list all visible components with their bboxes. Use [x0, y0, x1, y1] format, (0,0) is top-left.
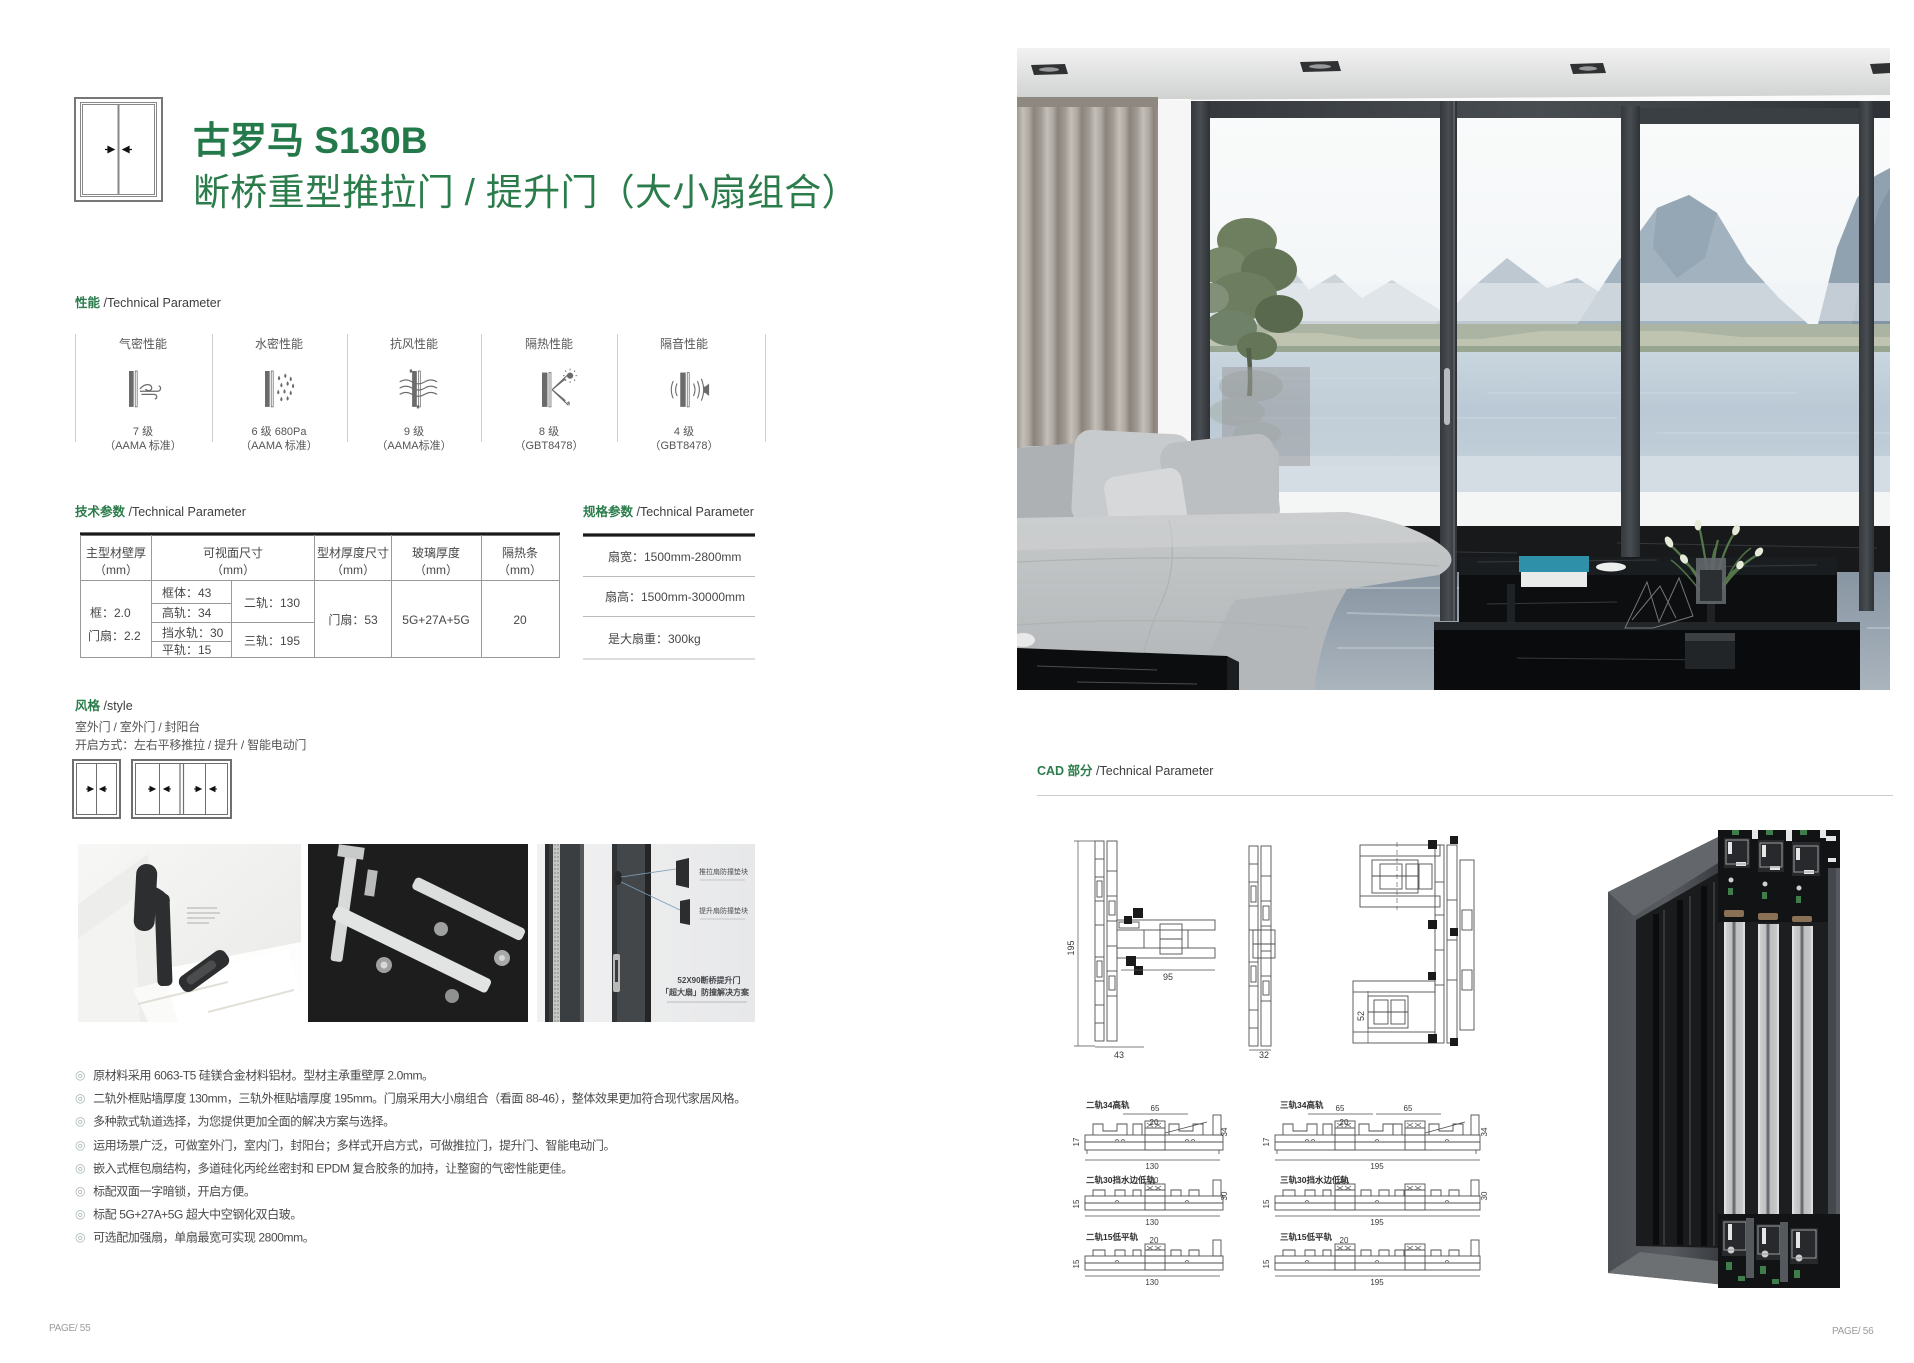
svg-text:平轨：15: 平轨：15 — [162, 643, 212, 657]
svg-text:6 级 680Pa: 6 级 680Pa — [251, 425, 307, 438]
svg-text:可视面尺寸: 可视面尺寸 — [203, 545, 263, 560]
svg-text:130: 130 — [1145, 1278, 1159, 1287]
svg-text:5G+27A+5G: 5G+27A+5G — [402, 613, 469, 627]
svg-text:195: 195 — [1370, 1278, 1384, 1287]
svg-text:三轨34高轨: 三轨34高轨 — [1280, 1100, 1324, 1110]
svg-text:15: 15 — [1072, 1259, 1081, 1268]
svg-text:9 级: 9 级 — [404, 425, 424, 438]
svg-text:17: 17 — [1072, 1137, 1081, 1146]
svg-text:挡水轨：30: 挡水轨：30 — [162, 626, 224, 640]
svg-text:框：2.0: 框：2.0 — [90, 606, 131, 620]
svg-text:20: 20 — [1150, 1118, 1159, 1127]
svg-text:52: 52 — [1356, 1011, 1366, 1021]
svg-text:20: 20 — [513, 613, 527, 627]
svg-text:（mm）: （mm） — [331, 563, 375, 577]
svg-text:8 级: 8 级 — [539, 425, 559, 438]
svg-text:扇高：1500mm-30000mm: 扇高：1500mm-30000mm — [605, 589, 745, 604]
svg-text:框体：43: 框体：43 — [162, 586, 212, 600]
svg-text:15: 15 — [1262, 1259, 1271, 1268]
svg-text:三轨15低平轨: 三轨15低平轨 — [1280, 1232, 1332, 1242]
svg-text:43: 43 — [1114, 1050, 1124, 1060]
svg-text:20: 20 — [1340, 1118, 1349, 1127]
svg-text:（GBT8478）: （GBT8478） — [649, 439, 718, 452]
svg-text:7 级: 7 级 — [133, 425, 153, 438]
svg-text:（GBT8478）: （GBT8478） — [514, 439, 583, 452]
svg-text:（mm）: （mm） — [211, 563, 255, 577]
svg-text:抗风性能: 抗风性能 — [390, 336, 438, 351]
svg-text:门扇：53: 门扇：53 — [328, 612, 378, 627]
svg-text:扇宽：1500mm-2800mm: 扇宽：1500mm-2800mm — [608, 549, 741, 564]
svg-text:（AAMA 标准）: （AAMA 标准） — [104, 438, 182, 452]
svg-text:32: 32 — [1259, 1050, 1269, 1060]
svg-text:34: 34 — [1220, 1127, 1229, 1136]
svg-text:二轨34高轨: 二轨34高轨 — [1086, 1100, 1130, 1110]
svg-text:34: 34 — [1480, 1127, 1489, 1136]
svg-text:（AAMA 标准）: （AAMA 标准） — [240, 438, 318, 452]
svg-text:20: 20 — [1340, 1236, 1349, 1245]
svg-text:4 级: 4 级 — [674, 425, 694, 438]
svg-text:15: 15 — [1072, 1199, 1081, 1208]
svg-text:二轨15低平轨: 二轨15低平轨 — [1086, 1232, 1138, 1242]
svg-text:隔热条: 隔热条 — [502, 546, 538, 560]
svg-text:二轨30挡水边低轨: 二轨30挡水边低轨 — [1086, 1175, 1155, 1185]
svg-text:20: 20 — [1340, 1176, 1349, 1185]
svg-text:20: 20 — [1150, 1176, 1159, 1185]
svg-text:推拉扇防撞垫块: 推拉扇防撞垫块 — [699, 867, 748, 876]
svg-text:（mm）: （mm） — [498, 563, 542, 577]
svg-text:水密性能: 水密性能 — [255, 336, 303, 351]
svg-text:195: 195 — [1066, 940, 1076, 955]
svg-text:三轨：195: 三轨：195 — [244, 634, 300, 648]
svg-text:195: 195 — [1370, 1218, 1384, 1227]
svg-text:130: 130 — [1145, 1162, 1159, 1171]
svg-text:65: 65 — [1336, 1104, 1345, 1113]
svg-text:提升扇防撞垫块: 提升扇防撞垫块 — [699, 906, 748, 915]
svg-text:52X90断桥提升门: 52X90断桥提升门 — [677, 975, 740, 985]
svg-text:20: 20 — [1150, 1236, 1159, 1245]
svg-text:隔热性能: 隔热性能 — [525, 337, 573, 351]
svg-text:二轨：130: 二轨：130 — [244, 596, 300, 610]
svg-text:门扇：2.2: 门扇：2.2 — [88, 628, 141, 643]
svg-text:195: 195 — [1370, 1162, 1384, 1171]
svg-text:30: 30 — [1480, 1191, 1489, 1200]
svg-text:15: 15 — [1262, 1199, 1271, 1208]
svg-text:65: 65 — [1151, 1104, 1160, 1113]
svg-text:是大扇重：300kg: 是大扇重：300kg — [608, 631, 701, 646]
svg-text:95: 95 — [1163, 972, 1173, 982]
svg-text:玻璃厚度: 玻璃厚度 — [412, 545, 460, 560]
svg-text:（mm）: （mm） — [414, 563, 458, 577]
svg-text:130: 130 — [1145, 1218, 1159, 1227]
svg-text:高轨：34: 高轨：34 — [162, 605, 212, 620]
svg-text:「超大扇」防撞解决方案: 「超大扇」防撞解决方案 — [661, 987, 750, 997]
svg-text:65: 65 — [1404, 1104, 1413, 1113]
svg-text:30: 30 — [1220, 1191, 1229, 1200]
svg-text:主型材壁厚: 主型材壁厚 — [86, 545, 146, 560]
svg-text:（AAMA标准）: （AAMA标准） — [376, 438, 451, 452]
svg-text:隔音性能: 隔音性能 — [660, 336, 708, 351]
svg-text:（mm）: （mm） — [94, 563, 138, 577]
svg-text:气密性能: 气密性能 — [119, 336, 167, 351]
svg-text:17: 17 — [1262, 1137, 1271, 1146]
svg-text:型材厚度尺寸: 型材厚度尺寸 — [317, 545, 389, 560]
